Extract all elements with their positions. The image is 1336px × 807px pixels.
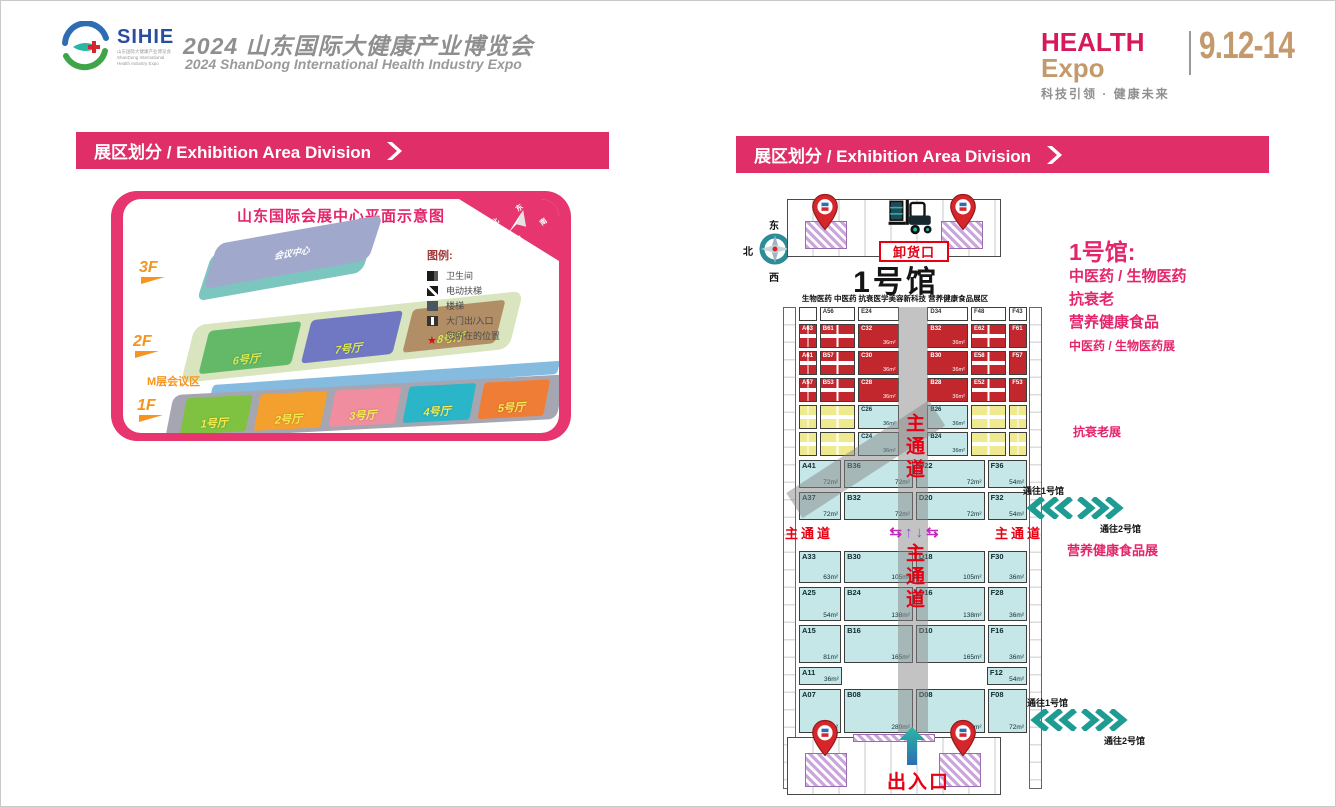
booth: D34 — [927, 307, 968, 321]
booth-label: F57 — [1012, 353, 1022, 359]
legend-label: 大门出/入口 — [446, 314, 494, 327]
booth-label: B30 — [930, 353, 941, 359]
hall-1f: 4号厅 — [403, 383, 476, 423]
booth-area: 36m² — [952, 449, 965, 455]
booth — [799, 405, 817, 429]
booth: A63 — [799, 324, 817, 348]
venue-map: 山东国际会展中心平面示意图 东 北 南 西 3F 2F 1F 会议中心 — [123, 199, 559, 433]
booth-area: 54m² — [1009, 512, 1024, 519]
booth: B28 36m² — [927, 378, 968, 402]
brand-expo: Expo — [1041, 53, 1105, 83]
entrance-exit-label: 出入口 — [887, 767, 983, 794]
booth: F61 — [1009, 324, 1027, 348]
booth-area: 36m² — [883, 341, 896, 347]
passage-indicator-top: 通往1号馆 通往2号馆 — [1023, 484, 1141, 535]
zone-label-tcm: 中医药 / 生物医药展 — [1069, 337, 1175, 354]
passage-chevrons-icon — [1027, 709, 1131, 731]
booth-label: F48 — [974, 309, 984, 315]
booth-area: 72m² — [967, 480, 982, 487]
expo-title-en: 2024 ShanDong International Health Indus… — [185, 56, 522, 72]
cross-aisle: 主通道 ⇆ ↑ ↓ ⇆ 主通道 — [785, 523, 1043, 542]
hall-2f: 7号厅 — [301, 310, 404, 363]
booth: B61 — [820, 324, 855, 348]
booth: A15 81m² — [799, 625, 841, 663]
booth-label: A15 — [802, 627, 816, 635]
booth-label: F36 — [991, 462, 1004, 470]
booth: A25 54m² — [799, 587, 841, 621]
booth: B57 — [820, 351, 855, 375]
booth-area: 36m² — [952, 395, 965, 401]
booth-area: 105m² — [963, 575, 981, 582]
m-floor-label: M层会议区 — [147, 373, 200, 389]
booth-label: F30 — [991, 553, 1004, 561]
zone-label-antiaging: 抗衰老展 — [1073, 423, 1121, 440]
passage-indicator-bottom: 通往1号馆 通往2号馆 — [1027, 696, 1145, 747]
zone-label-nutrition: 营养健康食品展 — [1067, 540, 1158, 559]
legend-label: 楼梯 — [446, 299, 464, 312]
booth: B30 36m² — [927, 351, 968, 375]
floor-label-2f: 2F — [133, 333, 152, 351]
booth: F53 — [1009, 378, 1027, 402]
booth: F43 — [1009, 307, 1027, 321]
booth: E24 — [858, 307, 899, 321]
booth: F08 72m² — [988, 689, 1027, 733]
main-aisle-label-vertical: 主通道 — [899, 413, 927, 482]
booth: A61 — [799, 351, 817, 375]
booth — [1009, 432, 1027, 456]
booth: B24 36m² — [927, 432, 968, 456]
booth: E58 — [971, 351, 1006, 375]
hall-label: 6号厅 — [231, 349, 263, 368]
booth: F48 — [971, 307, 1006, 321]
booth — [971, 405, 1006, 429]
booth: F28 36m² — [988, 587, 1027, 621]
legend-title: 图例: — [427, 247, 545, 263]
legend-label: 卫生间 — [446, 269, 473, 282]
booth-label: E24 — [861, 309, 872, 315]
compass-west: 西 — [769, 269, 779, 284]
booth-area: 72m² — [967, 512, 982, 519]
booth-area: 36m² — [883, 368, 896, 374]
entrance-hatch — [805, 753, 847, 787]
location-pin-icon — [949, 719, 977, 757]
direction-arrows-icon: ⇆ ↑ ↓ ⇆ — [889, 525, 938, 540]
page: SIHIE 山东国际大健康产业博览会ShanDong International… — [0, 0, 1336, 807]
booth-area: 72m² — [823, 512, 838, 519]
booth-area: 72m² — [1009, 725, 1024, 732]
left-section-banner: 展区划分 / Exhibition Area Division — [76, 132, 609, 169]
booth-area: 36m² — [1009, 613, 1024, 620]
legend-label: 您所在的位置 — [446, 329, 500, 342]
booth-label: A57 — [802, 380, 813, 386]
booth: A56 — [820, 307, 855, 321]
booth — [799, 432, 817, 456]
swap-arrow-icon: ⇆ — [926, 525, 939, 540]
legend-items: 卫生间 电动扶梯 楼梯 大门出/入口 您所在的位置 — [427, 268, 545, 343]
booth: C32 36m² — [858, 324, 899, 348]
booth-label: C28 — [861, 380, 872, 386]
passage-to-hall1-label: 通往1号馆 — [1027, 696, 1145, 709]
booth: B53 — [820, 378, 855, 402]
location-pin-icon — [811, 719, 839, 757]
booth-label: F61 — [1012, 326, 1022, 332]
hall-1f: 2号厅 — [254, 391, 327, 431]
booth-label: A33 — [802, 553, 816, 561]
booth-area: 36m² — [952, 341, 965, 347]
compass-needle-icon — [498, 205, 534, 240]
legend-icon — [427, 331, 438, 341]
booth-label: A56 — [823, 309, 834, 315]
booth — [971, 432, 1006, 456]
booth: F30 36m² — [988, 551, 1027, 583]
hall-label: 1号厅 — [199, 414, 230, 432]
booth-label: A07 — [802, 691, 816, 699]
booth: F16 36m² — [988, 625, 1027, 663]
booth-label: B53 — [823, 380, 834, 386]
compass-north: 北 — [743, 243, 753, 258]
booth: C30 36m² — [858, 351, 899, 375]
legend-icon — [427, 271, 438, 281]
hall-1f: 3号厅 — [328, 387, 401, 427]
location-pin-icon — [811, 193, 839, 231]
hall-1f: 1号厅 — [180, 395, 253, 433]
sidebar-category: 中医药 / 生物医药 — [1069, 265, 1187, 288]
legend-row: 您所在的位置 — [427, 328, 545, 343]
legend-row: 楼梯 — [427, 298, 545, 313]
booth-area: 36m² — [952, 422, 965, 428]
sidebar-category: 抗衰老 — [1069, 288, 1187, 311]
legend-row: 卫生间 — [427, 268, 545, 283]
hall-1f: 5号厅 — [477, 379, 550, 419]
booth-area: 63m² — [823, 575, 838, 582]
hall-label: 5号厅 — [496, 398, 527, 416]
booth-area: 36m² — [883, 395, 896, 401]
booth-label: A63 — [802, 326, 813, 332]
booth-label: A61 — [802, 353, 813, 359]
legend-label: 电动扶梯 — [446, 284, 482, 297]
brand-divider — [1189, 31, 1191, 75]
banner-chevron-icon — [385, 141, 403, 161]
hall-subtitle: 生物医药 中医药 抗衰医学美容新科技 营养健康食品展区 — [749, 293, 1041, 304]
booth: E62 — [971, 324, 1006, 348]
expo-dates: 9.12-14 — [1199, 25, 1294, 68]
booth-label: B24 — [930, 434, 941, 440]
booth-label: B28 — [930, 380, 941, 386]
booth-label: B32 — [847, 494, 861, 502]
booth: F57 — [1009, 351, 1027, 375]
booth-label: C26 — [861, 407, 872, 413]
sidebar-category-list: 中医药 / 生物医药抗衰老营养健康食品 — [1069, 265, 1187, 334]
booth-area: 54m² — [1009, 677, 1024, 684]
main-aisle-label-vertical: 主通道 — [899, 543, 927, 612]
booth: F12 54m² — [987, 667, 1027, 685]
booth: A57 — [799, 378, 817, 402]
booth-label: B32 — [930, 326, 941, 332]
booth-label: E62 — [974, 326, 985, 332]
right-section-banner: 展区划分 / Exhibition Area Division — [736, 136, 1269, 173]
booth — [799, 307, 817, 321]
hall-label: 4号厅 — [422, 402, 453, 420]
booth-label: F32 — [991, 494, 1004, 502]
booth-area: 165m² — [963, 655, 981, 662]
sidebar-hall-title: 1号馆: — [1069, 233, 1135, 267]
booth: F36 54m² — [988, 460, 1027, 488]
venue-map-card: 山东国际会展中心平面示意图 东 北 南 西 3F 2F 1F 会议中心 — [111, 191, 571, 441]
booth-label: F53 — [1012, 380, 1022, 386]
right-banner-label: 展区划分 / Exhibition Area Division — [754, 142, 1031, 167]
booth: F32 54m² — [988, 492, 1027, 520]
booth-label: E58 — [974, 353, 985, 359]
booth-area: 81m² — [823, 655, 838, 662]
booth-label: E52 — [974, 380, 985, 386]
hall-label: 3号厅 — [348, 406, 379, 424]
booth — [1009, 405, 1027, 429]
legend-icon — [427, 286, 438, 296]
legend-icon — [427, 316, 438, 326]
swap-arrow-icon: ⇆ — [889, 525, 902, 540]
hall-left-wall — [783, 307, 796, 789]
forklift-icon — [887, 197, 937, 237]
booth-area: 36m² — [1009, 575, 1024, 582]
booth-label: B57 — [823, 353, 834, 359]
hall1-floorplan: 东 南 西 北 — [741, 193, 1043, 805]
location-pin-icon — [949, 193, 977, 231]
booth-label: F43 — [1012, 309, 1022, 315]
building-3f-label: 会议中心 — [273, 242, 313, 262]
sidebar-category: 营养健康食品 — [1069, 311, 1187, 334]
booth-area: 54m² — [823, 613, 838, 620]
left-banner-label: 展区划分 / Exhibition Area Division — [94, 138, 371, 163]
brand-slogan: 科技引领 · 健康未来 — [1041, 85, 1191, 102]
booth-label: B16 — [847, 627, 861, 635]
booth-label: A25 — [802, 589, 816, 597]
booth-label: F08 — [991, 691, 1004, 699]
booth-label: F12 — [990, 669, 1003, 677]
booth-label: A11 — [802, 669, 815, 677]
booth-label: B24 — [847, 589, 861, 597]
passage-chevrons-icon — [1023, 497, 1127, 519]
booth: E52 — [971, 378, 1006, 402]
booth: A33 63m² — [799, 551, 841, 583]
floor-label-1f: 1F — [137, 397, 156, 415]
booth-label: C30 — [861, 353, 872, 359]
hall-2f: 6号厅 — [198, 321, 301, 374]
booth-label: B30 — [847, 553, 861, 561]
down-arrow-icon: ↓ — [916, 525, 924, 540]
passage-to-hall1-label: 通往1号馆 — [1023, 484, 1141, 497]
booth: C28 36m² — [858, 378, 899, 402]
hall-label: 2号厅 — [274, 410, 305, 428]
passage-to-hall2-label: 通往2号馆 — [1027, 734, 1145, 747]
logo-swirl-icon — [59, 21, 111, 73]
passage-to-hall2-label: 通往2号馆 — [1023, 522, 1141, 535]
booth: A11 36m² — [799, 667, 842, 685]
booth-area: 54m² — [1009, 480, 1024, 487]
booth-label: B08 — [847, 691, 861, 699]
booth-label: B61 — [823, 326, 834, 332]
up-arrow-icon: ↑ — [905, 525, 913, 540]
banner-chevron-icon — [1045, 145, 1063, 165]
legend: 图例: 卫生间 电动扶梯 楼梯 — [427, 247, 545, 343]
booth-area: 36m² — [1009, 655, 1024, 662]
floor-label-3f: 3F — [139, 259, 158, 277]
booth-area: 36m² — [952, 368, 965, 374]
booth-area: 36m² — [824, 677, 839, 684]
booth-area: 138m² — [963, 613, 981, 620]
booth-label: D34 — [930, 309, 941, 315]
legend-row: 电动扶梯 — [427, 283, 545, 298]
compass-south: 南 — [538, 216, 550, 228]
booth-label: F28 — [991, 589, 1004, 597]
entrance-arrow-icon — [899, 727, 925, 765]
main-aisle-band — [898, 307, 928, 733]
booth-label: F16 — [991, 627, 1004, 635]
booth-label: A41 — [802, 462, 816, 470]
main-aisle-label-left: 主通道 — [785, 523, 833, 542]
legend-icon — [427, 301, 438, 311]
legend-row: 大门出/入口 — [427, 313, 545, 328]
brand-block: HEALTH Expo 科技引领 · 健康未来 — [1041, 29, 1191, 102]
booth — [820, 405, 855, 429]
booth-label: C32 — [861, 326, 872, 332]
hall-label: 7号厅 — [333, 339, 365, 358]
booth: B32 36m² — [927, 324, 968, 348]
